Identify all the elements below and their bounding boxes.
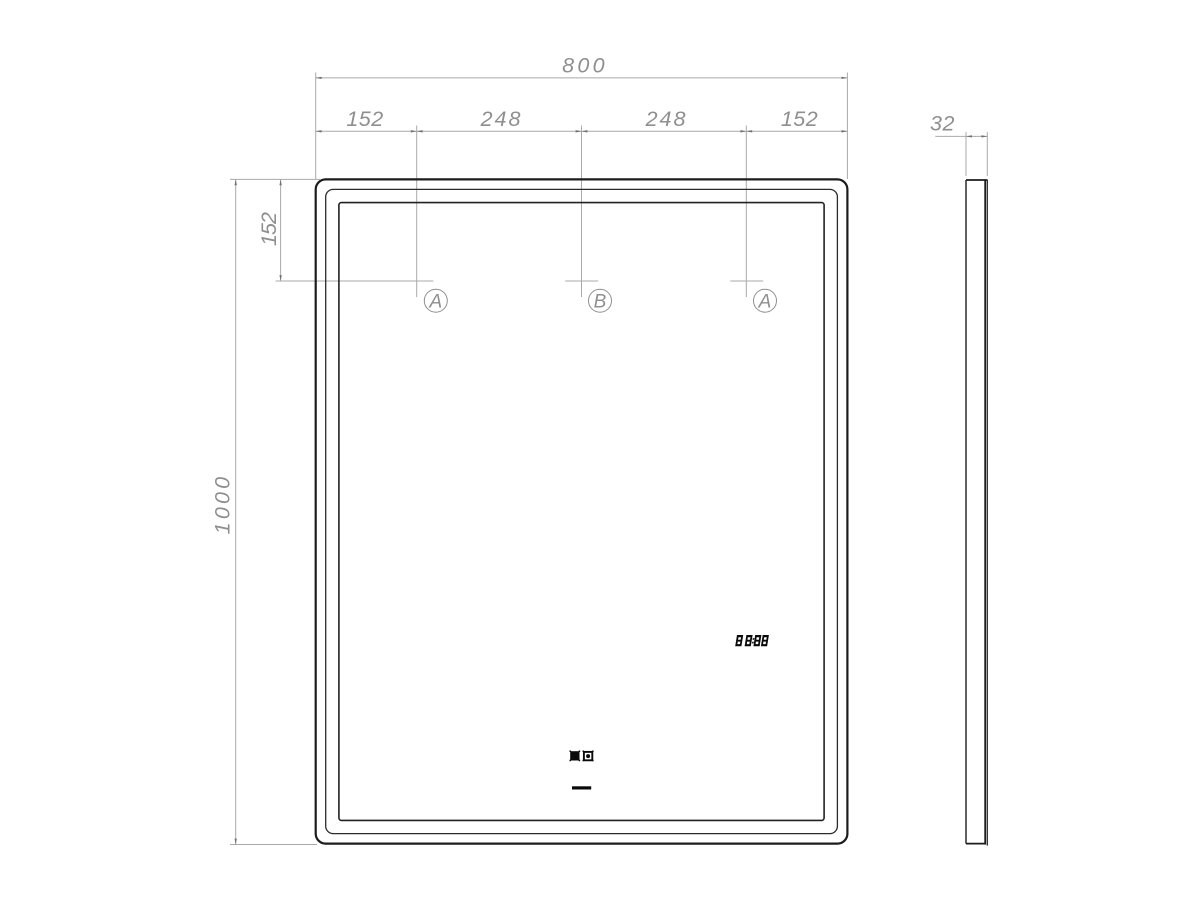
svg-text:248: 248 bbox=[480, 107, 523, 131]
svg-text:248: 248 bbox=[645, 107, 688, 131]
svg-text:800: 800 bbox=[562, 54, 608, 78]
svg-text:32: 32 bbox=[930, 112, 955, 136]
svg-text:A: A bbox=[428, 292, 442, 313]
svg-text:152: 152 bbox=[257, 212, 281, 246]
svg-text:152: 152 bbox=[346, 107, 383, 131]
svg-text:152: 152 bbox=[781, 107, 818, 131]
svg-text:A: A bbox=[758, 292, 772, 313]
svg-text:B: B bbox=[594, 292, 607, 313]
svg-text:1000: 1000 bbox=[211, 474, 235, 535]
